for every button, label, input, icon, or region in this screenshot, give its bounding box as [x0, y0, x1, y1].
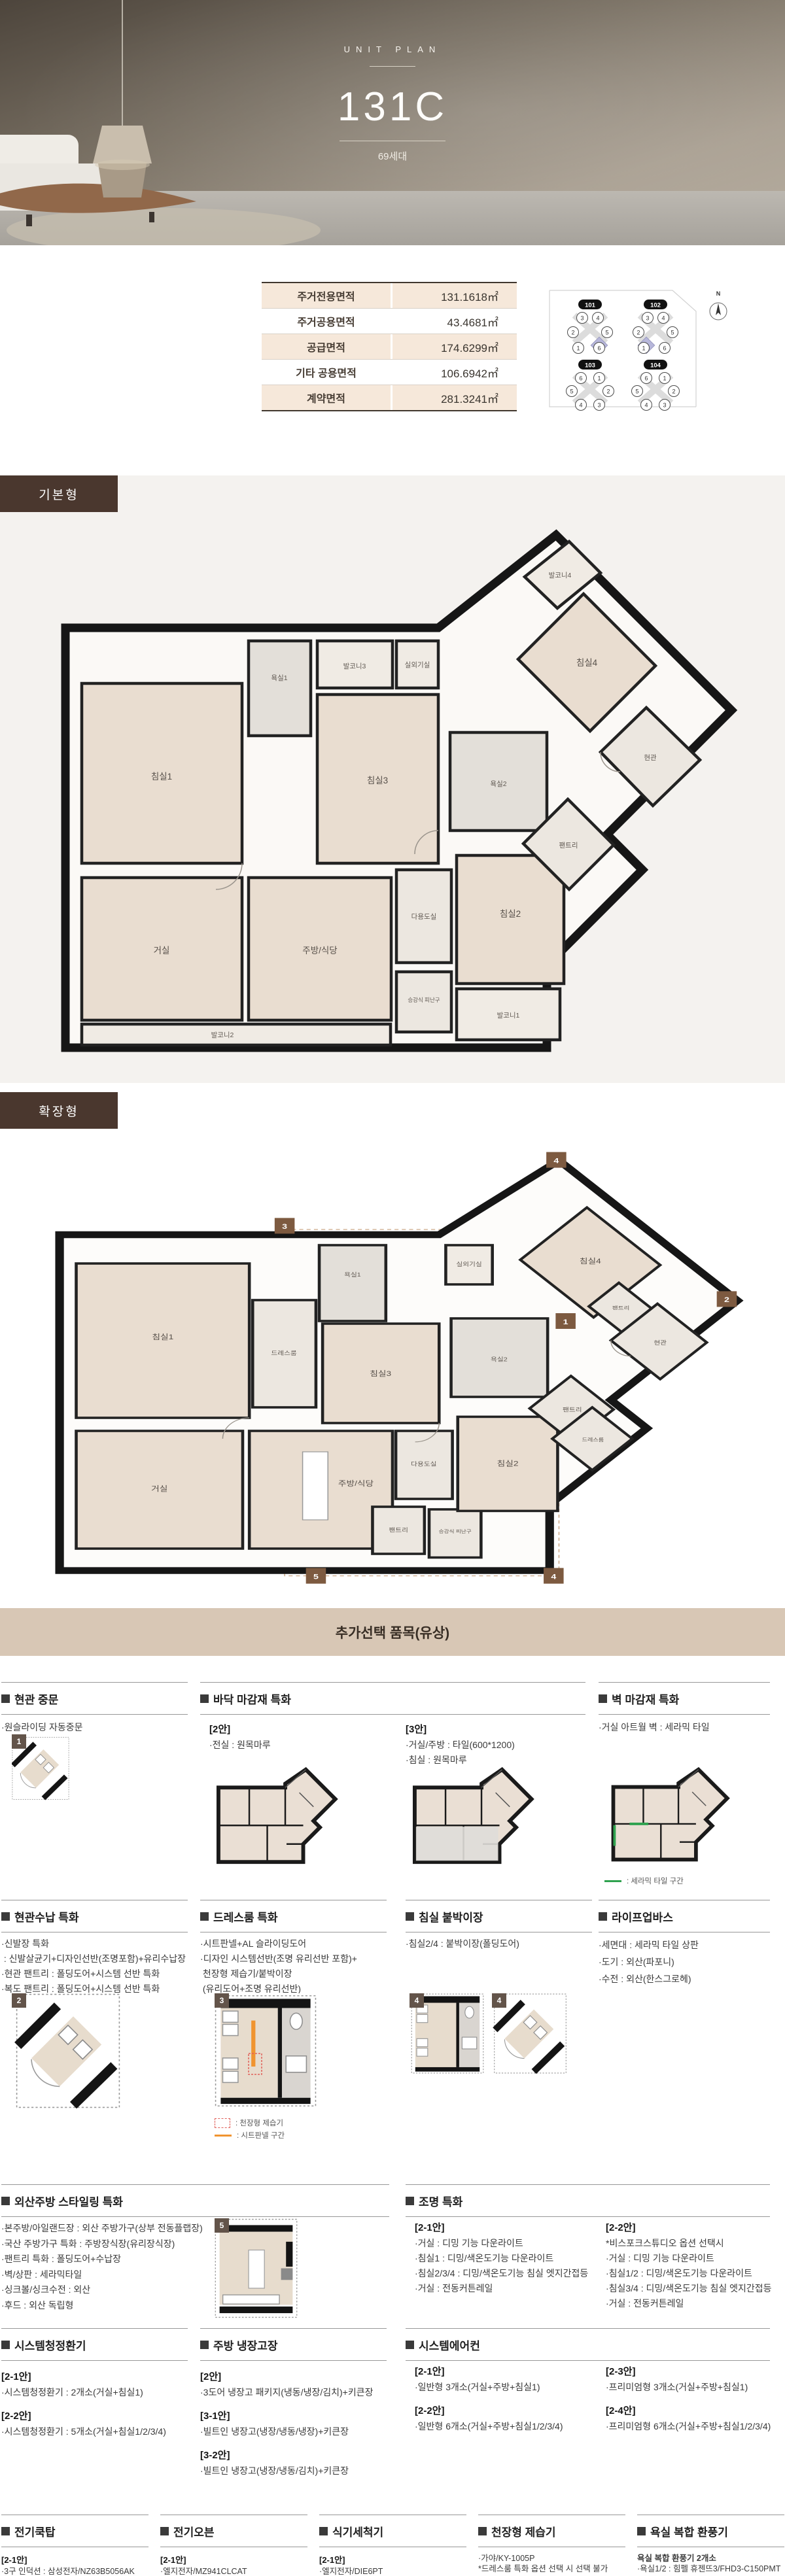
option-line: *드레스룸 특화 옵션 선택 시 선택 불가: [478, 2564, 625, 2574]
area-label: 기타 공용면적: [262, 360, 392, 385]
room-label: 팬트리: [559, 842, 578, 850]
option-card-aircon: 시스템에어컨 [2-1안] ·일반형 3개소(거실+주방+침실1) [2-2안]…: [406, 2328, 770, 2446]
area-value: 43.4681㎡: [392, 309, 517, 334]
option-card-title: 식기세척기: [332, 2523, 383, 2539]
basic-type-label: 기본형: [0, 475, 118, 512]
option-line: ·시스템청정환기 : 5개소(거실+침실1/2/3/4): [1, 2424, 188, 2439]
option-line: ·엘지전자/DIE6PT: [319, 2566, 466, 2576]
section-bullet-icon: [406, 2197, 414, 2205]
hero-divider: [370, 66, 415, 67]
option-line: *비스포크스튜디오 옵션 선택시: [606, 2236, 773, 2251]
green-line-legend-icon: [604, 1880, 621, 1882]
compass-icon: N: [710, 290, 727, 320]
option-line: ·수전 : 외산(한스그로헤): [599, 1970, 770, 1987]
area-value: 106.6942㎡: [392, 360, 517, 385]
room-label: 욕실2: [491, 1357, 508, 1364]
section-bullet-icon: [1, 1912, 10, 1921]
svg-text:4: 4: [553, 1156, 559, 1165]
option-card-dressroom: 드레스룸 특화 ·시트판넬+AL 슬라이딩도어 ·디자인 시스템선반(조명 유리…: [200, 1900, 387, 2142]
building-badge: 101: [585, 302, 596, 309]
option-card-title: 현관수납 특화: [14, 1908, 79, 1925]
option-plan-tag: [2-2안]: [606, 2220, 773, 2234]
option-plan-tag: [2-2안]: [1, 2409, 188, 2422]
section-bullet-icon: [1, 2197, 10, 2205]
option-line: ·침실1 : 디밍/색온도기능 다운라이트: [415, 2251, 591, 2266]
section-bullet-icon: [1, 2341, 10, 2349]
option-plan-tag: [2-1안]: [1, 2553, 148, 2566]
section-bullet-icon: [200, 2341, 209, 2349]
plan-marker-badge: 2: [12, 1993, 26, 2008]
room-label: 발코니1: [497, 1012, 520, 1020]
svg-text:1: 1: [663, 375, 666, 382]
orange-line-legend-icon: [215, 2135, 232, 2137]
room-label: 거실: [154, 946, 170, 955]
building-badge: 103: [585, 362, 595, 369]
option-line: ·거실 아트월 벽 : 세라믹 타일: [599, 1720, 770, 1735]
section-bullet-icon: [200, 1694, 209, 1703]
svg-text:4: 4: [551, 1572, 557, 1581]
option-line: 욕실 복합 환풍기 2개소: [637, 2553, 784, 2564]
kitchen-island: [303, 1452, 328, 1520]
room-label: 침실1: [152, 1333, 173, 1341]
option-card-kitchen-styling: 외산주방 스타일링 특화 ·본주방/아일랜드장 : 외산 주방가구(상부 전동플…: [1, 2184, 389, 2325]
option-card-title: 시스템청정환기: [14, 2337, 86, 2353]
option-line: ·국산 주방가구 특화 : 주방장식장(유리장식장): [1, 2237, 212, 2252]
extended-floor-plan: 침실1 드레스룸 욕실1 침실3 실외기실 침실4 팬트리 욕실2 현관 팬트리…: [20, 1146, 765, 1590]
plan-marker-badge: 5: [215, 2218, 229, 2233]
option-line: ·후드 : 외산 독립형: [1, 2298, 212, 2314]
option-line: : 신발살균기+디자인선반(조명포함)+유리수납장: [1, 1951, 188, 1966]
svg-text:3: 3: [646, 315, 649, 322]
option-line: ·본주방/아일랜드장 : 외산 주방가구(상부 전동플랩장): [1, 2221, 212, 2237]
plan-marker-badge: 1: [12, 1734, 26, 1749]
option-line: ·일반형 3개소(거실+주방+침실1): [415, 2380, 591, 2395]
svg-text:2: 2: [637, 330, 640, 336]
option-card-wall-finish: 벽 마감재 특화 ·거실 아트월 벽 : 세라믹 타일 : 세라믹 타일 구간: [599, 1682, 770, 1885]
entrance-storage-plan-crop: [12, 1993, 124, 2108]
section-bullet-icon: [160, 2527, 169, 2535]
svg-text:5: 5: [635, 388, 638, 395]
option-card-oven: 전기오븐 [2-1안] ·엘지전자/MZ941CLCAT [2-2안] ·밀레/…: [160, 2515, 307, 2576]
option-line: ·침실2/3/4 : 디밍/색온도기능 침실 엣지간접등: [415, 2266, 591, 2281]
option-card-title: 전기쿡탑: [14, 2523, 56, 2539]
room-label: 욕실2: [490, 780, 506, 788]
room-label: 드레스룸: [582, 1437, 604, 1443]
svg-text:2: 2: [672, 388, 675, 395]
option-card-title: 시스템에어컨: [419, 2337, 480, 2353]
option-card-floor-finish: 바닥 마감재 특화 [2안] ·전실 : 원목마루 [3안] ·거실/주방 : …: [200, 1682, 585, 1878]
room-label: 승강식 피난구: [408, 997, 440, 1003]
option-line: ·거실 : 디밍 기능 다운라이트: [606, 2251, 773, 2266]
option-card-title: 벽 마감재 특화: [612, 1691, 679, 1707]
svg-text:5: 5: [605, 330, 608, 336]
site-plan-map: 101 3 4 2 5 1 6 102 3 4 2 5 1 6 103 6 1: [543, 283, 746, 413]
option-plan-tag: [2-1안]: [415, 2220, 591, 2234]
room-label: 발코니3: [343, 662, 366, 670]
option-card-title: 조명 특화: [419, 2193, 462, 2209]
option-plan-tag: [2안]: [209, 1722, 392, 1736]
option-card-title: 욕실 복합 환풍기: [650, 2523, 728, 2539]
paid-options-title: 추가선택 품목(유상): [336, 1623, 449, 1642]
room-label: 침실2: [500, 909, 521, 919]
option-line: ·가야/KY-1005P: [478, 2553, 625, 2564]
legend-label: : 천장형 제습기: [235, 2118, 283, 2128]
section-bullet-icon: [319, 2527, 328, 2535]
option-line: ·3도어 냉장고 패키지(냉동/냉장/김치)+키큰장: [200, 2385, 387, 2400]
household-count: 69세대: [0, 149, 785, 163]
room-label: 침실4: [576, 658, 598, 668]
option-line: ·현관 팬트리 : 폴딩도어+시스템 선반 특화: [1, 1966, 188, 1982]
area-label: 주거공용면적: [262, 309, 392, 334]
legend-label: : 세라믹 타일 구간: [627, 1876, 684, 1886]
tile-zone-overlay: [416, 1827, 498, 1861]
svg-text:4: 4: [596, 315, 599, 322]
room-label: 욕실1: [271, 674, 287, 682]
option-line: ·프리미엄형 3개소(거실+주방+침실1): [606, 2380, 773, 2395]
table-row: 주거공용면적 43.4681㎡: [262, 309, 517, 334]
table-row: 주거전용면적 131.1618㎡: [262, 283, 517, 309]
svg-text:3: 3: [597, 402, 601, 409]
svg-text:2: 2: [606, 388, 610, 395]
option-card-title: 주방 냉장고장: [213, 2337, 278, 2353]
section-bullet-icon: [1, 1694, 10, 1703]
section-bullet-icon: [599, 1912, 607, 1921]
room-label: 침실3: [370, 1369, 391, 1377]
option-card-title: 현관 중문: [14, 1691, 58, 1707]
option-card-entrance-door: 현관 중문 ·원슬라이딩 자동중문 1: [1, 1682, 188, 1878]
option-line: ·거실 : 디밍 기능 다운라이트: [415, 2236, 591, 2251]
option-plan-tag: [2안]: [200, 2369, 387, 2383]
svg-text:2: 2: [571, 330, 574, 336]
option-line: ·전실 : 원목마루: [209, 1738, 392, 1753]
option-line: ·욕실1/2 : 힘펠 휴젠뜨3/FHD3-C150PMT: [637, 2564, 784, 2574]
option-plan-tag: [2-2안]: [415, 2403, 591, 2417]
area-table: 주거전용면적 131.1618㎡ 주거공용면적 43.4681㎡ 공급면적 17…: [262, 282, 517, 411]
room-label: 주방/식당: [302, 946, 337, 955]
svg-text:1: 1: [576, 345, 580, 352]
option-plan-tag: [2-1안]: [415, 2364, 591, 2378]
svg-text:5: 5: [671, 330, 674, 336]
area-label: 주거전용면적: [262, 283, 392, 308]
room-label: 주방/식당: [338, 1479, 374, 1487]
building-102: 102 3 4 2 5 1 6: [633, 300, 678, 354]
area-value: 281.3241㎡: [392, 385, 517, 410]
building-103: 103 6 1 5 2 4 3: [567, 360, 614, 411]
room-label: 팬트리: [389, 1527, 408, 1534]
room-label: 드레스룸: [271, 1350, 296, 1357]
room-label: 실외기실: [405, 661, 430, 669]
room-label: 팬트리: [612, 1305, 630, 1311]
option-plan-tag: [2-1안]: [160, 2553, 307, 2566]
svg-text:3: 3: [282, 1222, 287, 1231]
hero-divider-2: [340, 141, 445, 141]
option-line: ·시스템청정환기 : 2개소(거실+침실1): [1, 2385, 188, 2400]
option-line: ·벽/상판 : 세라믹타일: [1, 2267, 212, 2283]
section-bullet-icon: [200, 1912, 209, 1921]
room-label: 발코니2: [211, 1031, 234, 1039]
section-bullet-icon: [637, 2527, 646, 2535]
kitchen-plan-crop: [215, 2218, 298, 2318]
svg-text:4: 4: [579, 402, 582, 409]
svg-text:1: 1: [642, 345, 645, 352]
option-plan-tag: [3안]: [406, 1722, 589, 1736]
svg-text:1: 1: [563, 1317, 568, 1326]
option-plan-tag: [2-3안]: [606, 2364, 773, 2378]
section-bullet-icon: [599, 1694, 607, 1703]
svg-text:4: 4: [644, 402, 648, 409]
unit-plan-page: UNIT PLAN 131C 69세대 주거전용면적 131.1618㎡ 주거공…: [0, 0, 785, 2576]
option-plan-tag: [2-1안]: [1, 2369, 188, 2383]
table-row: 계약면적 281.3241㎡: [262, 385, 517, 410]
section-bullet-icon: [478, 2527, 487, 2535]
option-card-title: 바닥 마감재 특화: [213, 1691, 291, 1707]
option-plan-tag: [2-1안]: [319, 2553, 466, 2566]
option-card-life-up-bath: 라이프업바스 ·세면대 : 세라믹 타일 상판 ·도기 : 외산(파포니) ·수…: [599, 1900, 770, 2031]
building-104: 104 6 1 5 2 4 3: [632, 360, 680, 411]
option-line: ·디자인 시스템선반(조명 유리선반 포함)+: [200, 1951, 387, 1966]
room-label: 현관: [644, 754, 657, 762]
extended-type-label: 확장형: [0, 1092, 118, 1129]
plan-marker-badge: 4: [410, 1993, 424, 2008]
option-line: ·빌트인 냉장고(냉장/냉동/김치)+키큰장: [200, 2464, 387, 2479]
option-line: ·거실 : 전동커튼레일: [606, 2296, 773, 2311]
red-dashed-box-legend-icon: [215, 2118, 230, 2128]
room-label: 팬트리: [563, 1407, 582, 1413]
option-card-title: 드레스룸 특화: [213, 1908, 278, 1925]
option-line: ·침실2/4 : 붙박이장(폴딩도어): [406, 1936, 592, 1951]
room-label: 현관: [654, 1340, 667, 1347]
unit-type-title: 131C: [0, 84, 785, 130]
option-card-title: 라이프업바스: [612, 1908, 673, 1925]
basic-floor-plan: 침실1 욕실1 발코니3 실외기실 발코니4 침실4 침실3 욕실2 현관 팬트…: [26, 517, 759, 1073]
plan-marker-badge: 4: [492, 1993, 506, 2008]
area-label: 공급면적: [262, 334, 392, 359]
option-line: ·3구 인덕션 : 삼성전자/NZ63B5056AK: [1, 2566, 148, 2576]
floor-finish-plan3: [406, 1764, 560, 1870]
svg-text:2: 2: [724, 1296, 729, 1304]
room-label: 실외기실: [456, 1261, 481, 1267]
option-line: 천장형 제습기/붙박이장: [200, 1966, 387, 1982]
option-line: ·일반형 6개소(거실+주방+침실1/2/3/4): [415, 2419, 591, 2434]
dressroom-plan-crop: [215, 1993, 317, 2108]
option-card-dehumidifier: 천장형 제습기 ·가야/KY-1005P *드레스룸 특화 옵션 선택 시 선택…: [478, 2515, 625, 2576]
option-line: ·원슬라이딩 자동중문: [1, 1720, 188, 1735]
option-line: ·빌트인 냉장고(냉장/냉동/냉장)+키큰장: [200, 2424, 387, 2439]
room-label: 침실3: [367, 776, 388, 785]
option-card-title: 외산주방 스타일링 특화: [14, 2193, 123, 2209]
option-line: ·싱크볼/싱크수전 : 외산: [1, 2282, 212, 2298]
option-line: ·프리미엄형 6개소(거실+주방+침실1/2/3/4): [606, 2419, 773, 2434]
table-row: 기타 공용면적 106.6942㎡: [262, 360, 517, 385]
option-plan-tag: [2-4안]: [606, 2403, 773, 2417]
building-101: 101 3 4 2 5 1 6: [568, 300, 613, 354]
option-card-title: 침실 붙박이장: [419, 1908, 483, 1925]
svg-text:1: 1: [597, 375, 601, 382]
option-card-lighting: 조명 특화 [2-1안] ·거실 : 디밍 기능 다운라이트 ·침실1 : 디밍…: [406, 2184, 770, 2325]
area-value: 174.6299㎡: [392, 334, 517, 359]
option-line: ·신발장 특화: [1, 1936, 188, 1951]
room-label: 거실: [151, 1485, 167, 1492]
option-card-builtin-closet: 침실 붙박이장 ·침실2/4 : 붙박이장(폴딩도어) 4 4: [406, 1900, 592, 2122]
paid-options-title-bar: 추가선택 품목(유상): [0, 1608, 785, 1656]
option-card-entrance-storage: 현관수납 특화 ·신발장 특화 : 신발살균기+디자인선반(조명포함)+유리수납…: [1, 1900, 188, 2122]
hero-eyebrow: UNIT PLAN: [0, 44, 785, 54]
room-label: 침실4: [580, 1257, 601, 1265]
floor-finish-plan2: [209, 1764, 364, 1870]
svg-text:6: 6: [663, 345, 666, 352]
room-label: 다용도실: [411, 913, 437, 921]
option-card-bath-fan: 욕실 복합 환풍기 욕실 복합 환풍기 2개소 ·욕실1/2 : 힘펠 휴젠뜨3…: [637, 2515, 784, 2576]
option-plan-tag: [3-1안]: [200, 2409, 387, 2422]
svg-text:6: 6: [644, 375, 648, 382]
svg-text:5: 5: [570, 388, 573, 395]
area-label: 계약면적: [262, 385, 392, 410]
option-card-fridge-cabinet: 주방 냉장고장 [2안] ·3도어 냉장고 패키지(냉동/냉장/김치)+키큰장 …: [200, 2328, 387, 2465]
svg-text:N: N: [716, 290, 721, 297]
plan-marker-badge: 3: [215, 1993, 229, 2008]
room-label: 침실1: [151, 772, 172, 781]
section-bullet-icon: [406, 1912, 414, 1921]
wall-finish-plan: [604, 1764, 755, 1868]
option-line: ·세면대 : 세라믹 타일 상판: [599, 1936, 770, 1953]
option-line: ·도기 : 외산(파포니): [599, 1953, 770, 1970]
option-line: ·시트판넬+AL 슬라이딩도어: [200, 1936, 387, 1951]
option-card-title: 천장형 제습기: [491, 2523, 556, 2539]
option-line: ·엘지전자/MZ941CLCAT: [160, 2566, 307, 2576]
svg-text:5: 5: [313, 1572, 319, 1581]
option-card-cooktop: 전기쿡탑 [2-1안] ·3구 인덕션 : 삼성전자/NZ63B5056AK […: [1, 2515, 148, 2576]
section-bullet-icon: [1, 2527, 10, 2535]
room-label: 침실2: [497, 1460, 519, 1468]
svg-text:4: 4: [661, 315, 665, 322]
option-card-title: 전기오븐: [173, 2523, 215, 2539]
option-line: ·침실3/4 : 디밍/색온도기능 침실 엣지간접등: [606, 2281, 773, 2296]
svg-text:6: 6: [579, 375, 582, 382]
svg-text:3: 3: [663, 402, 666, 409]
option-line: ·팬트리 특화 : 폴딩도어+수납장: [1, 2252, 212, 2267]
room-label: 발코니4: [549, 572, 572, 579]
area-value: 131.1618㎡: [392, 283, 517, 308]
svg-text:3: 3: [580, 315, 584, 322]
option-card-ventilation: 시스템청정환기 [2-1안] ·시스템청정환기 : 2개소(거실+침실1) [2…: [1, 2328, 188, 2446]
building-badge: 102: [650, 302, 661, 309]
option-card-dishwasher: 식기세척기 [2-1안] ·엘지전자/DIE6PT [2-2안] ·밀레/G79…: [319, 2515, 466, 2576]
table-row: 공급면적 174.6299㎡: [262, 334, 517, 360]
room-label: 욕실1: [344, 1272, 361, 1279]
svg-text:6: 6: [597, 345, 601, 352]
option-line: ·거실 : 전동커튼레일: [415, 2281, 591, 2296]
option-line: ·거실/주방 : 타일(600*1200): [406, 1738, 589, 1753]
legend-label: : 시트판넬 구간: [237, 2130, 285, 2140]
section-bullet-icon: [406, 2341, 414, 2349]
building-badge: 104: [650, 362, 661, 369]
option-plan-tag: [3-2안]: [200, 2448, 387, 2462]
room-label: 다용도실: [411, 1462, 436, 1468]
room-label: 승강식 피난구: [439, 1528, 472, 1534]
option-line: ·침실1/2 : 디밍/색온도기능 다운라이트: [606, 2266, 773, 2281]
